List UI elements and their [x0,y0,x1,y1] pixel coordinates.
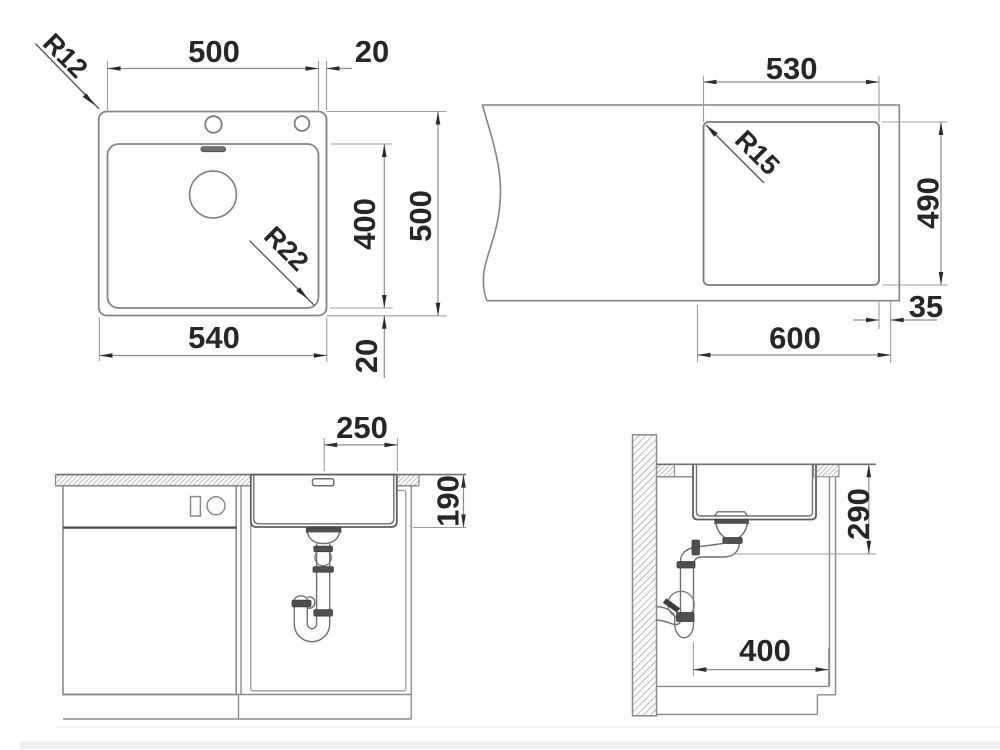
svg-text:190: 190 [431,475,466,527]
svg-text:35: 35 [909,289,943,324]
svg-text:20: 20 [355,34,389,69]
svg-text:600: 600 [769,321,821,356]
svg-text:400: 400 [739,633,791,668]
svg-text:490: 490 [911,177,946,229]
svg-text:500: 500 [188,34,240,69]
svg-text:290: 290 [841,488,876,540]
svg-text:500: 500 [403,190,438,242]
svg-text:540: 540 [188,320,240,355]
svg-text:250: 250 [336,410,388,445]
svg-text:400: 400 [347,198,382,250]
svg-text:530: 530 [766,51,818,86]
svg-text:20: 20 [349,339,384,373]
